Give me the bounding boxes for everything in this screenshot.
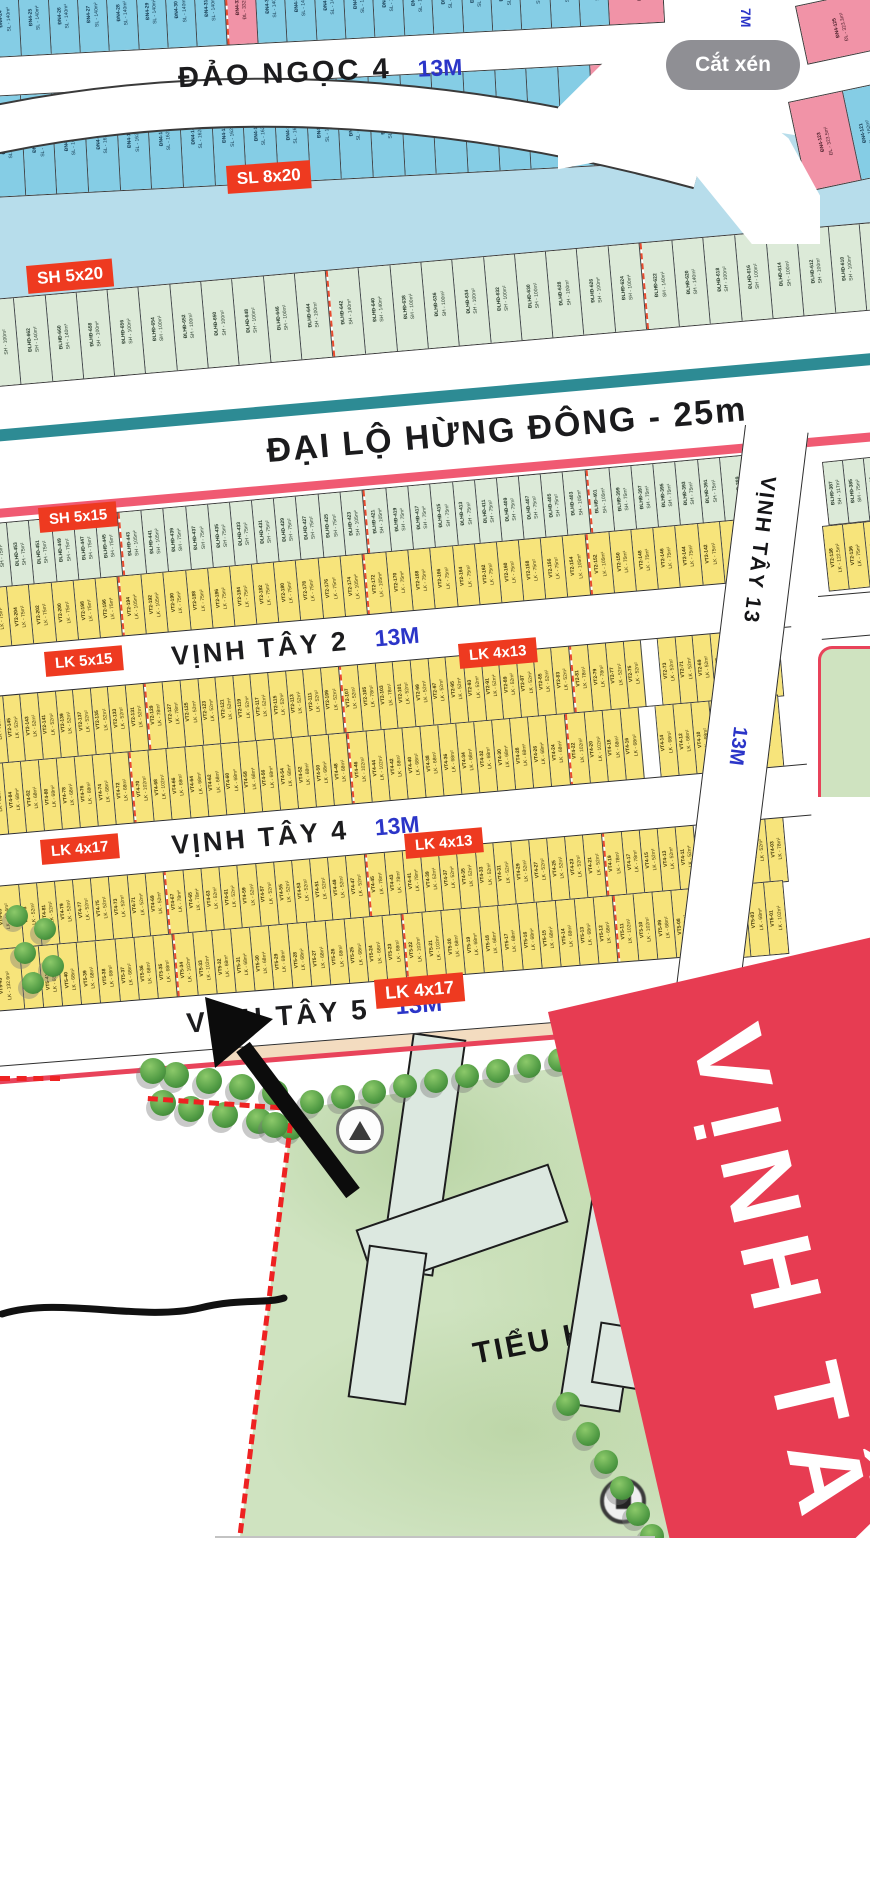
plot-cell: ĐN4-45ĐL - 332.4m²: [606, 0, 664, 24]
plot-cell: ĐN4-39SL - 140m²: [431, 0, 464, 34]
plot-row-sh5x15-right: ĐLHĐ-387SH - 117m²ĐLHĐ-385SH - 75m²ĐLHĐ-…: [822, 456, 870, 526]
tree-icon: [626, 1502, 650, 1526]
plot-cell: ĐN4-41SL - 140m²: [489, 0, 522, 31]
boundary-dashed-far-left: [0, 1076, 60, 1081]
road-width: 13M: [374, 621, 421, 652]
tree-icon: [486, 1059, 510, 1083]
road-vinh-tay-2-east: [818, 590, 870, 639]
tree-icon: [455, 1064, 479, 1088]
tree-icon: [594, 1450, 618, 1474]
tree-icon: [140, 1058, 166, 1084]
plot-cell: ĐN4-42SL - 140m²: [519, 0, 552, 29]
plot-cell: ĐN4-43SL - 140m²: [548, 0, 581, 28]
tree-icon: [556, 1392, 580, 1416]
tree-icon: [517, 1054, 541, 1078]
tree-icon: [42, 955, 64, 977]
tree-icon: [6, 905, 28, 927]
road-name: VỊNH TÂY 13: [738, 475, 780, 626]
photo-viewer-canvas: ĐN4-24SL - 140m²ĐN4-25SL - 140m²ĐN4-26SL…: [0, 0, 870, 1884]
tree-icon: [22, 972, 44, 994]
road-width-7m: 7M: [738, 8, 754, 27]
tree-icon: [34, 918, 56, 940]
tag-sl-8x20: SL 8x20: [226, 160, 312, 194]
photo-bottom-edge: [215, 1536, 655, 1538]
scribble-annotation: [0, 1268, 300, 1348]
arrow-annotation: [165, 975, 385, 1205]
plot-row-lk5x15-right: VT2-138LK - 122.5m²VT2-136LK - 75m²VT2-1…: [822, 520, 870, 592]
tree-icon: [424, 1069, 448, 1093]
crop-button-label: Cắt xén: [695, 53, 771, 77]
tree-icon: [576, 1422, 600, 1446]
tree-icon: [14, 942, 36, 964]
tree-icon: [610, 1476, 634, 1500]
master-plan-map: ĐN4-24SL - 140m²ĐN4-25SL - 140m²ĐN4-26SL…: [0, 0, 870, 1538]
plot-cell: ĐN4-40SL - 140m²: [460, 0, 493, 32]
road-width: 13M: [724, 725, 752, 766]
project-banner-text: VỊNH TÂY: [668, 1015, 870, 1538]
plot-cell: ĐN4-44SL - 140m²: [577, 0, 610, 26]
crop-button[interactable]: Cắt xén: [666, 40, 800, 90]
east-park: [818, 646, 870, 797]
road-width: 13M: [417, 54, 463, 83]
